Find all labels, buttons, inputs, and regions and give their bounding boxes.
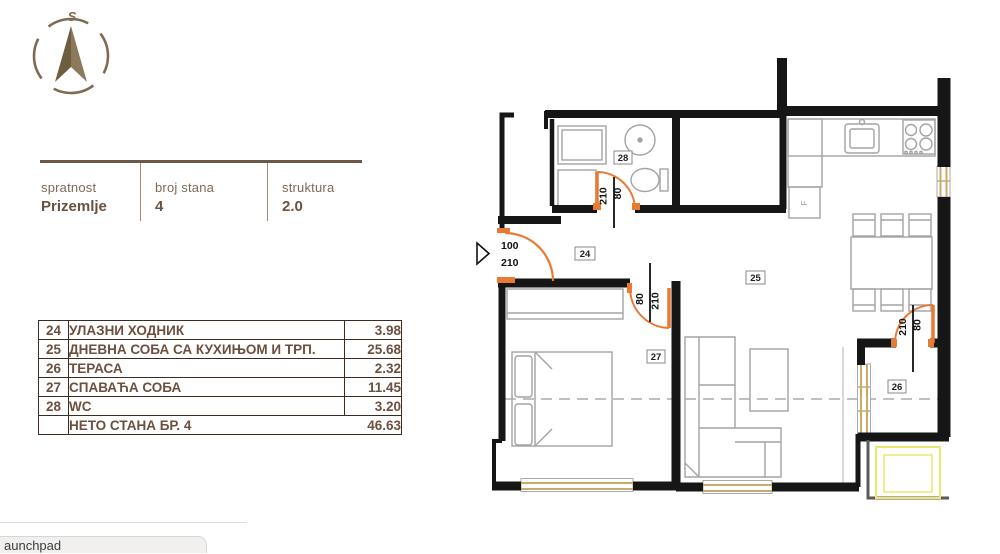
dining-table (851, 237, 932, 289)
room-number: 26 (39, 359, 69, 378)
chair (853, 289, 875, 311)
north-arrow-icon (55, 26, 71, 82)
walls (492, 58, 949, 488)
launchpad-tooltip[interactable]: aunchpad (0, 536, 207, 553)
wall-step (494, 441, 502, 484)
wall (502, 115, 514, 230)
room-area: 2.32 (345, 359, 402, 378)
window-living (703, 481, 772, 494)
window-terrace (858, 364, 871, 434)
info-cell-struktura: struktura 2.0 (267, 163, 362, 221)
info-value: Prizemlje (41, 198, 140, 215)
info-value: 2.0 (282, 198, 362, 215)
kitchen-counter-left (788, 119, 822, 187)
burner (920, 138, 932, 150)
info-cell-spratnost: spratnost Prizemlje (40, 163, 140, 221)
dim-wc-door-height: 210 (598, 187, 610, 205)
room-name: ДНЕВНА СОБА СА КУХИЊОМ И ТРП. (69, 340, 345, 359)
shower-unit (558, 126, 606, 164)
north-arrow-icon-right (71, 26, 87, 82)
room-tag-terrace: 26 (892, 382, 903, 393)
room-area: 25.68 (345, 340, 402, 359)
room-number: 27 (39, 378, 69, 397)
window-bedroom (521, 479, 633, 492)
info-label: struktura (282, 180, 362, 195)
doors (497, 172, 934, 347)
table-row: 27 СПАВАЋА СОБА 11.45 (39, 378, 402, 397)
toilet-bowl (631, 169, 659, 192)
pillow (515, 404, 532, 445)
apartment-info-header: spratnost Prizemlje broj stana 4 struktu… (40, 160, 362, 221)
table-row: 28 WC 3.20 (39, 397, 402, 416)
dim-entrance-width: 100 (501, 240, 519, 252)
room-area: 11.45 (345, 378, 402, 397)
lower-terrace-outline (868, 440, 949, 498)
door-entrance (497, 228, 553, 283)
room-name: СПАВАЋА СОБА (69, 378, 345, 397)
info-label: spratnost (41, 180, 140, 195)
room-area: 3.20 (345, 397, 402, 416)
info-label: broj stana (155, 180, 267, 195)
stove-knob (905, 151, 907, 153)
room-number: 28 (39, 397, 69, 416)
sofa-cushion-lines (685, 337, 781, 477)
dim-bedroom-door-width: 80 (634, 293, 646, 305)
pillow (515, 356, 532, 397)
room-area: 3.98 (345, 321, 402, 340)
chair (881, 214, 903, 236)
table-row: 24 УЛАЗНИ ХОДНИК 3.98 (39, 321, 402, 340)
room-name: WC (69, 397, 345, 416)
total-area: 46.63 (345, 416, 402, 435)
fridge-label: F (799, 200, 809, 205)
room-number: 25 (39, 340, 69, 359)
burner (920, 124, 932, 136)
shower-unit-inner (562, 130, 602, 160)
room-number (39, 416, 69, 435)
stove-knob (915, 151, 917, 153)
room-name: УЛАЗНИ ХОДНИК (69, 321, 345, 340)
kitchen-sink-inner (850, 129, 874, 148)
compass-north-label: S (68, 9, 77, 24)
room-number: 24 (39, 321, 69, 340)
dim-wc-door-width: 80 (612, 188, 624, 200)
dim-terrace-door-height: 210 (897, 318, 909, 336)
room-tag-bedroom: 27 (651, 352, 662, 363)
compass-rose: S (26, 6, 116, 98)
table-row: 26 ТЕРАСА 2.32 (39, 359, 402, 378)
window-kitchen (937, 166, 950, 197)
table-total-row: НЕТО СТАНА БР. 4 46.63 (39, 416, 402, 435)
coffee-table (750, 349, 788, 411)
entrance-arrow-icon (477, 243, 489, 264)
room-tag-hallway: 24 (580, 249, 591, 260)
room-area-table: 24 УЛАЗНИ ХОДНИК 3.98 25 ДНЕВНА СОБА СА … (38, 320, 402, 435)
stove-knob (920, 151, 922, 153)
room-name: ТЕРАСА (69, 359, 345, 378)
page: { "compass": { "north_label": "S" }, "in… (0, 0, 1000, 552)
dim-entrance-height: 210 (501, 257, 519, 269)
wardrobe (507, 289, 623, 319)
balcony-below (876, 447, 940, 498)
total-label: НЕТО СТАНА БР. 4 (69, 416, 345, 435)
dim-bedroom-door-height: 210 (650, 292, 662, 310)
washing-machine (558, 170, 596, 207)
dim-terrace-door-width: 80 (912, 319, 924, 331)
floor-plan: 100 210 210 80 80 210 210 80 F 28 24 25 … (460, 45, 970, 520)
info-value: 4 (155, 198, 267, 215)
chair (853, 214, 875, 236)
sink-drain (638, 138, 642, 142)
room-tag-wc: 28 (618, 153, 629, 164)
table-row: 25 ДНЕВНА СОБА СА КУХИЊОМ И ТРП. 25.68 (39, 340, 402, 359)
info-cell-broj-stana: broj stana 4 (140, 163, 267, 221)
bottom-divider (0, 522, 247, 523)
burner (906, 139, 917, 150)
room-number-tags: 28 24 25 27 26 (575, 151, 906, 393)
chair (909, 214, 931, 236)
toilet-cistern (660, 169, 668, 191)
chair (881, 289, 903, 311)
stove-knob (910, 151, 912, 153)
windows (521, 166, 950, 494)
room-tag-living: 25 (750, 273, 761, 284)
burner (906, 125, 917, 136)
